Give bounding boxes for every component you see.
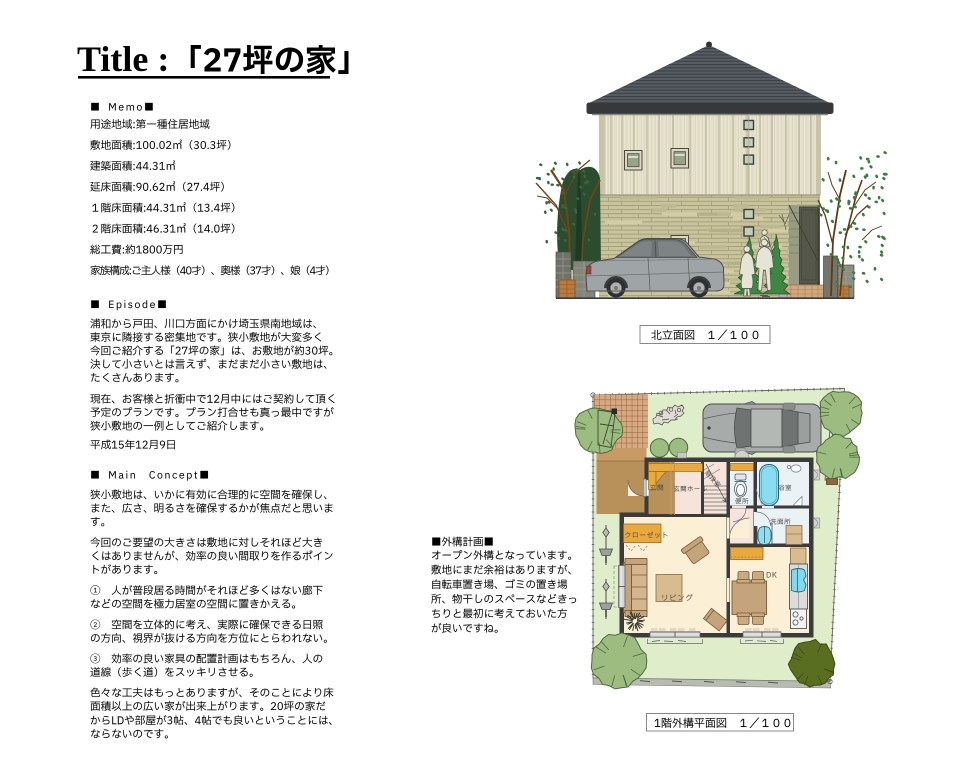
svg-text:Title :: Title : bbox=[77, 39, 169, 79]
